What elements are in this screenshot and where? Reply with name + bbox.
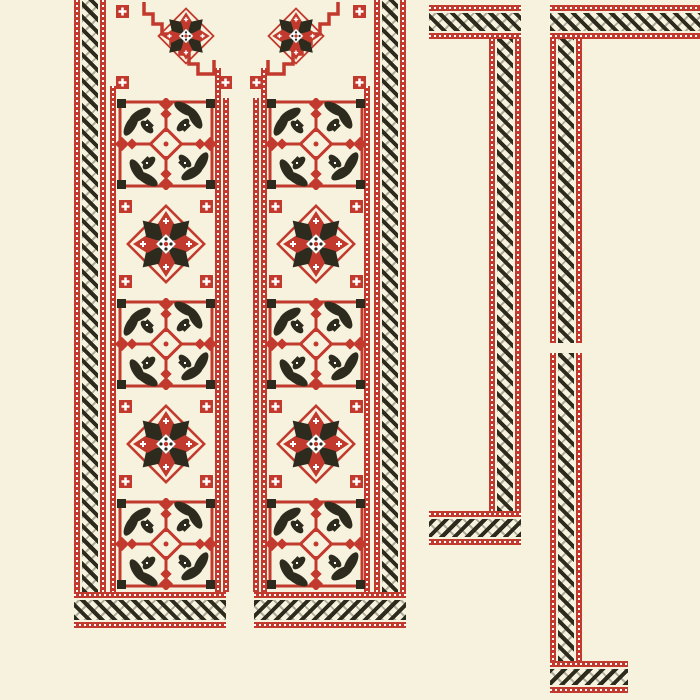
red-dotted-line xyxy=(550,687,628,693)
strip-middle-right-bar xyxy=(489,39,521,511)
motif-floral xyxy=(266,298,366,390)
red-dotted-line xyxy=(429,511,521,517)
front-panel-right-motifs xyxy=(266,98,366,590)
vine-meander xyxy=(382,0,398,592)
front-panel-left-motifs xyxy=(116,98,216,590)
red-dotted-line xyxy=(489,39,495,511)
red-dotted-line xyxy=(429,5,521,11)
vine-meander xyxy=(429,13,521,31)
strip-right-top-bar xyxy=(550,5,700,39)
red-dotted-line xyxy=(74,622,226,628)
front-bottom-left-band xyxy=(74,592,226,628)
strip-right-bottom-bar xyxy=(550,661,628,693)
motif-star xyxy=(266,398,366,490)
motif-floral xyxy=(266,98,366,190)
vine-meander xyxy=(497,39,513,511)
motif-star xyxy=(116,198,216,290)
strip-right-left-bar-lower xyxy=(550,353,582,661)
motif-corner-star xyxy=(108,2,236,96)
vine-meander xyxy=(550,13,700,31)
red-dotted-line xyxy=(550,661,628,667)
vine-meander xyxy=(558,39,574,343)
strip-right-left-bar-upper xyxy=(550,39,582,343)
embroidery-pattern-sheet xyxy=(0,0,700,700)
vine-meander xyxy=(74,600,226,620)
front-right-border-band xyxy=(374,0,406,592)
placket-line xyxy=(223,98,229,592)
vine-meander xyxy=(558,353,574,661)
red-dotted-line xyxy=(550,353,556,661)
red-dotted-line xyxy=(74,0,80,592)
red-dotted-line xyxy=(400,0,406,592)
vine-meander xyxy=(82,0,98,592)
motif-star xyxy=(266,198,366,290)
vine-meander xyxy=(254,600,406,620)
red-dotted-line xyxy=(74,592,226,598)
front-left-border-band xyxy=(74,0,106,592)
motif-corner-star-mirrored xyxy=(246,2,374,96)
red-dotted-line xyxy=(576,353,582,661)
red-dotted-line xyxy=(254,622,406,628)
motif-floral xyxy=(116,298,216,390)
strip-middle-bottom-bar xyxy=(429,511,521,545)
motif-star xyxy=(116,398,216,490)
placket-line xyxy=(253,98,259,592)
red-dotted-line xyxy=(100,0,106,592)
motif-floral xyxy=(116,98,216,190)
red-dotted-line xyxy=(576,39,582,343)
motif-floral xyxy=(116,498,216,590)
red-dotted-line xyxy=(550,5,700,11)
red-dotted-line xyxy=(374,0,380,592)
red-dotted-line xyxy=(515,39,521,511)
vine-meander xyxy=(429,519,521,537)
motif-floral xyxy=(266,498,366,590)
red-dotted-line xyxy=(429,539,521,545)
front-bottom-right-band xyxy=(254,592,406,628)
vine-meander xyxy=(550,669,628,685)
red-dotted-line xyxy=(550,39,556,343)
red-dotted-line xyxy=(254,592,406,598)
strip-middle-top-bar xyxy=(429,5,521,39)
